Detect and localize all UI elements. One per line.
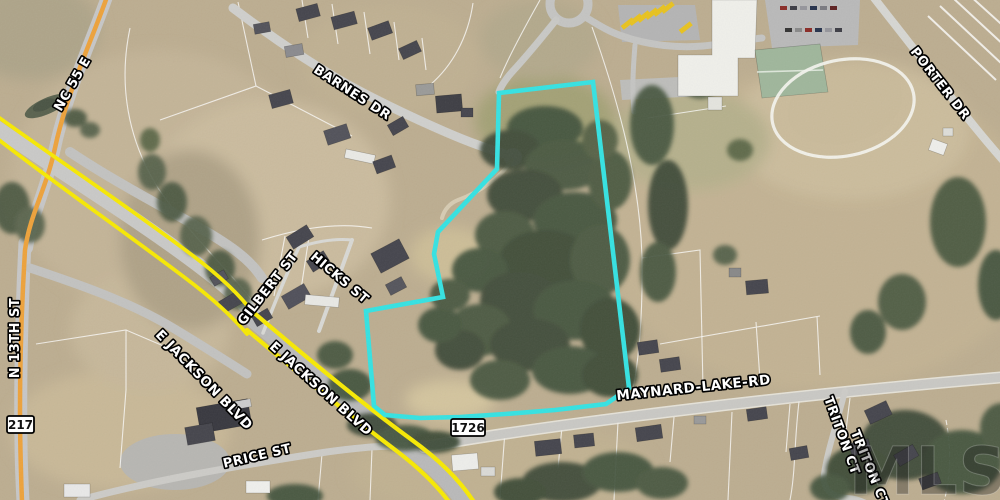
route-shield-1726-text: 1726 [451, 421, 484, 435]
aerial-map-canvas[interactable]: NC 55 E BARNES DR PORTER DR N 13TH ST GI… [0, 0, 1000, 500]
aerial-map-svg: NC 55 E BARNES DR PORTER DR N 13TH ST GI… [0, 0, 1000, 500]
route-shield-217-text: 217 [8, 418, 33, 432]
route-shield-1726: 1726 [451, 419, 485, 436]
aerial-grain [0, 0, 1000, 500]
mls-watermark: MLS [849, 433, 1000, 500]
street-label-n-13th-st: N 13TH ST [8, 298, 23, 379]
route-shield-217: 217 [7, 416, 34, 433]
